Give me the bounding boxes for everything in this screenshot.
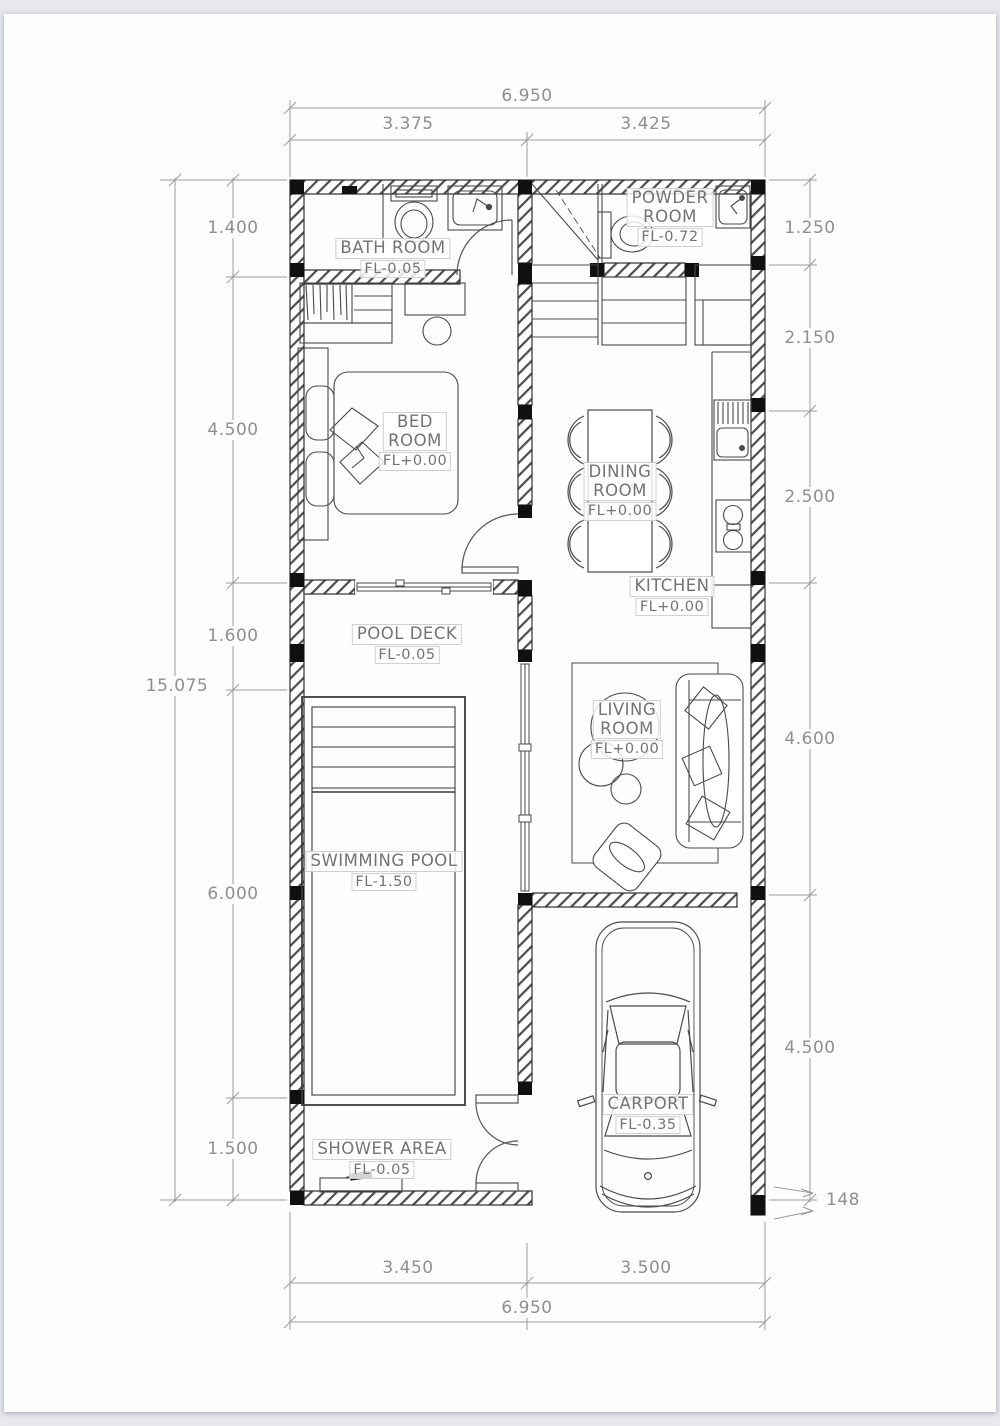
- kitchen-counter: [712, 352, 751, 628]
- dim-bottom-seg2: 3.500: [617, 1258, 674, 1278]
- room-level: FL-0.05: [360, 260, 425, 278]
- room-level: FL+0.00: [584, 502, 656, 520]
- room-name: POOL DECK: [352, 624, 462, 645]
- room-label-pool: SWIMMING POOL FL-1.50: [306, 851, 463, 891]
- dim-right-seg2: 2.150: [781, 328, 838, 348]
- room-name: CARPORT: [602, 1094, 693, 1115]
- room-level: FL+0.00: [591, 740, 663, 758]
- room-name: SHOWER AREA: [312, 1139, 451, 1160]
- car: [578, 922, 717, 1212]
- room-label-dining: DINING ROOM FL+0.00: [584, 462, 657, 521]
- dim-bottom-overall: 6.950: [498, 1298, 555, 1318]
- dim-left-seg1: 1.400: [204, 218, 261, 238]
- room-name: BATH ROOM: [335, 238, 450, 259]
- room-level: FL-0.35: [615, 1116, 680, 1134]
- dim-top-overall: 6.950: [498, 86, 555, 106]
- dim-right-seg5: 4.500: [781, 1038, 838, 1058]
- room-name: SWIMMING POOL: [306, 851, 463, 872]
- dim-right-seg1: 1.250: [781, 218, 838, 238]
- closet: [300, 283, 392, 343]
- room-label-kitchen: KITCHEN FL+0.00: [630, 576, 715, 616]
- desk-and-chair: [405, 283, 465, 345]
- dim-right-seg3: 2.500: [781, 487, 838, 507]
- room-label-bed: BED ROOM FL+0.00: [379, 412, 451, 471]
- floor-plan-drawing: [0, 0, 1000, 1426]
- dim-left-seg2: 4.500: [204, 420, 261, 440]
- room-label-bath: BATH ROOM FL-0.05: [335, 238, 450, 278]
- dim-top-seg1: 3.375: [379, 114, 436, 134]
- floor-plan-page: BATH ROOM FL-0.05 POWDER ROOM FL-0.72 BE…: [0, 0, 1000, 1426]
- sliding-door-pool-living: [518, 662, 532, 893]
- living-room-furniture: [572, 663, 743, 895]
- doors: [457, 220, 518, 1191]
- room-label-pool-deck: POOL DECK FL-0.05: [352, 624, 462, 664]
- room-name: DINING ROOM: [584, 462, 657, 501]
- room-label-living: LIVING ROOM FL+0.00: [591, 700, 663, 759]
- dim-right-seg4: 4.600: [781, 729, 838, 749]
- room-label-shower: SHOWER AREA FL-0.05: [312, 1139, 451, 1179]
- dim-bottom-seg1: 3.450: [379, 1258, 436, 1278]
- room-label-carport: CARPORT FL-0.35: [602, 1094, 693, 1134]
- swimming-pool: [302, 697, 465, 1105]
- room-name: KITCHEN: [630, 576, 715, 597]
- dim-left-seg4: 6.000: [204, 884, 261, 904]
- room-level: FL-0.72: [637, 228, 702, 246]
- room-level: FL-0.05: [349, 1161, 414, 1179]
- dim-left-overall: 15.075: [143, 676, 211, 696]
- room-level: FL+0.00: [379, 452, 451, 470]
- room-label-powder: POWDER ROOM FL-0.72: [627, 188, 714, 247]
- room-name: POWDER ROOM: [627, 188, 714, 227]
- room-level: FL+0.00: [636, 598, 708, 616]
- dim-right-wall-thickness: 148: [823, 1190, 863, 1210]
- room-level: FL-1.50: [351, 873, 416, 891]
- room-level: FL-0.05: [374, 646, 439, 664]
- dim-top-seg2: 3.425: [617, 114, 674, 134]
- room-name: LIVING ROOM: [593, 700, 661, 739]
- room-name: BED ROOM: [383, 412, 447, 451]
- window-bedroom-poolside: [355, 580, 493, 594]
- dim-left-seg3: 1.600: [204, 626, 261, 646]
- dim-left-seg5: 1.500: [204, 1139, 261, 1159]
